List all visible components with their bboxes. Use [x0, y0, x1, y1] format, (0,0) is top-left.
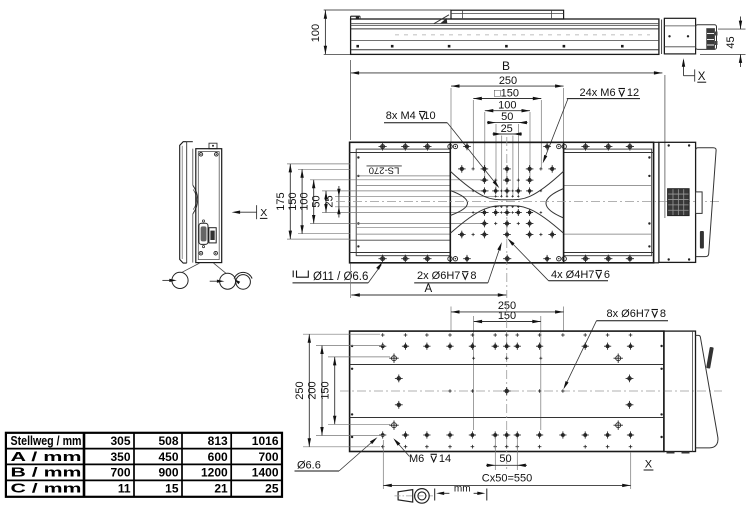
svg-text:350: 350: [110, 450, 130, 464]
svg-text:B: B: [502, 59, 510, 73]
svg-text:200: 200: [307, 381, 319, 399]
svg-text:175: 175: [275, 192, 287, 210]
svg-text:45: 45: [725, 36, 737, 48]
svg-text:14: 14: [439, 453, 451, 465]
svg-text:50: 50: [499, 453, 511, 465]
svg-text:100: 100: [498, 99, 516, 111]
svg-text:Stellweg / mm: Stellweg / mm: [11, 434, 82, 448]
svg-text:100: 100: [310, 24, 322, 42]
svg-text:8x Ø6H7: 8x Ø6H7: [607, 308, 650, 320]
svg-text:12: 12: [627, 87, 639, 99]
svg-text:1400: 1400: [252, 466, 279, 480]
svg-text:Ø11 / Ø6.6: Ø11 / Ø6.6: [313, 271, 368, 283]
svg-text:4x Ø4H7: 4x Ø4H7: [551, 269, 594, 281]
svg-text:700: 700: [110, 466, 130, 480]
svg-text:1200: 1200: [201, 466, 228, 480]
svg-text:X: X: [698, 71, 706, 83]
svg-text:813: 813: [208, 434, 228, 448]
svg-text:150: 150: [319, 381, 331, 399]
svg-text:508: 508: [158, 434, 178, 448]
svg-text:450: 450: [158, 450, 178, 464]
svg-text:25: 25: [324, 195, 336, 207]
svg-text:X: X: [260, 207, 267, 219]
svg-text:10: 10: [423, 110, 435, 122]
svg-text:X: X: [645, 458, 653, 470]
svg-text:15: 15: [165, 482, 179, 496]
svg-text:25: 25: [501, 123, 513, 135]
svg-text:C / mm: C / mm: [11, 482, 82, 496]
svg-text:250: 250: [294, 381, 306, 399]
svg-text:mm: mm: [454, 483, 471, 494]
svg-text:8: 8: [470, 270, 476, 282]
svg-text:8x M4: 8x M4: [386, 110, 416, 122]
svg-text:Cx50=550: Cx50=550: [482, 473, 532, 485]
svg-text:50: 50: [311, 195, 323, 207]
svg-text:11: 11: [118, 482, 131, 496]
svg-text:A: A: [424, 283, 432, 295]
svg-text:□150: □150: [494, 87, 519, 99]
svg-text:A / mm: A / mm: [11, 450, 82, 464]
svg-text:25: 25: [265, 482, 279, 496]
svg-text:8: 8: [660, 308, 666, 320]
svg-text:Ø6.6: Ø6.6: [297, 459, 321, 471]
svg-text:305: 305: [110, 434, 130, 448]
svg-text:6: 6: [604, 269, 610, 281]
svg-text:2x Ø6H7: 2x Ø6H7: [417, 270, 460, 282]
svg-text:24x M6: 24x M6: [580, 87, 616, 99]
svg-text:150: 150: [287, 192, 299, 210]
svg-text:100: 100: [298, 192, 310, 210]
svg-text:50: 50: [501, 111, 513, 123]
svg-text:21: 21: [214, 482, 228, 496]
svg-text:900: 900: [158, 466, 178, 480]
svg-text:M6: M6: [409, 453, 424, 465]
svg-text:600: 600: [208, 450, 228, 464]
svg-text:1016: 1016: [252, 434, 279, 448]
svg-text:250: 250: [499, 75, 517, 87]
svg-text:B / mm: B / mm: [11, 466, 82, 480]
svg-text:700: 700: [258, 450, 278, 464]
